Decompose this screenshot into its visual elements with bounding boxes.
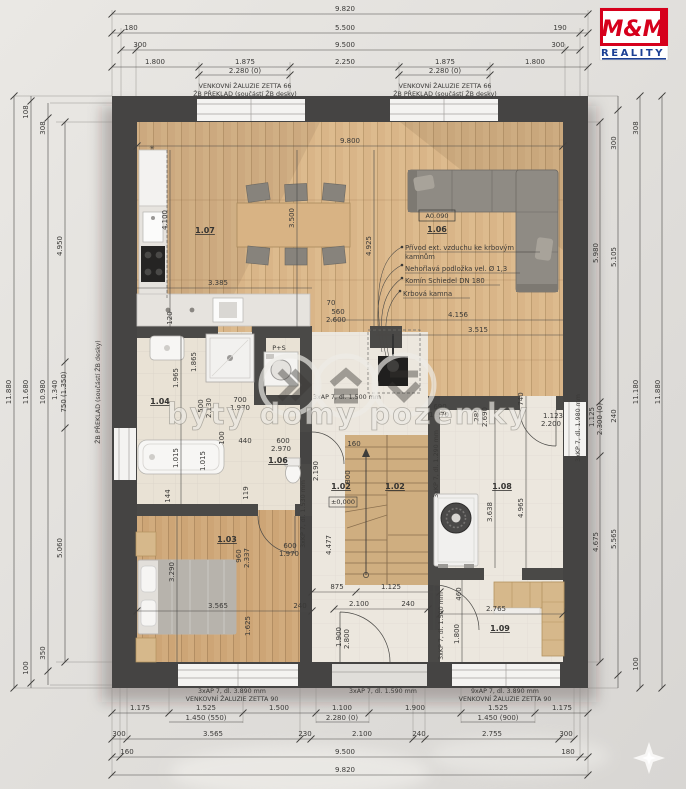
dim-label: 2.190 xyxy=(312,461,320,481)
dim-label: 9.500 xyxy=(335,41,355,49)
cooktop xyxy=(141,246,165,282)
dim-label: 308 xyxy=(39,121,47,134)
lintel-note: 9xAP 7, dl. 3.890 mm xyxy=(471,688,539,695)
room-label-living: 1.06 xyxy=(427,225,447,234)
lintel-note: 3xKP 7, dl. 1.290 mm xyxy=(433,430,440,498)
dim-label: 2.765 xyxy=(486,605,506,613)
lintel-note: ŽB PŘEKLAD (součástí ŽB desky) xyxy=(193,89,297,98)
snowflake-symbol: ✳ xyxy=(149,144,155,152)
dim-label: 240 xyxy=(610,409,618,422)
dim-label: 300 xyxy=(133,41,146,49)
room-label-entry: 1.09 xyxy=(490,624,510,633)
window-left xyxy=(114,428,136,480)
reference-label: A0.090 xyxy=(425,212,448,220)
dim-label: 108 xyxy=(22,105,30,118)
dim-label: 1.625 xyxy=(244,616,252,636)
dim-label: 2.100 xyxy=(349,600,369,608)
dim-label: 1.175 xyxy=(552,704,572,712)
dim-label: 180 xyxy=(561,748,574,756)
lintel-note: 3xKP 7, dl. 1.980 mm xyxy=(575,394,582,462)
dim-label: 2.100 xyxy=(352,730,372,738)
dim-label: 160 xyxy=(347,440,360,448)
dim-label: 240 xyxy=(412,730,425,738)
dim-label: 600 xyxy=(283,542,296,550)
mm-reality-logo: M&M REALITY xyxy=(600,8,668,60)
chair xyxy=(285,183,308,201)
shutter-note: VENKOVNÍ ŽALUZIE ZETTA 66 xyxy=(199,81,292,90)
dim-label: 875 xyxy=(330,583,343,591)
dim-label: 300 xyxy=(112,730,125,738)
dim-label: 5.565 xyxy=(610,529,618,549)
dim-label: 2.755 xyxy=(482,730,502,738)
dim-label: 230 xyxy=(298,730,311,738)
dim-label: 120 xyxy=(166,311,174,324)
lintel-note: 3xKP 7, dl. 1.530 mm xyxy=(300,480,307,548)
dim-label: 70 xyxy=(327,299,336,307)
dim-label: 1.875 xyxy=(435,58,455,66)
dim-label: 3.385 xyxy=(208,279,228,287)
dim-label: 440 xyxy=(238,437,251,445)
dim-label: 1.175 xyxy=(130,704,150,712)
lintel-note: ŽB PŘEKLAD (součástí ŽB desky) xyxy=(393,89,497,98)
room-label-tech: 1.08 xyxy=(492,482,512,491)
dim-label: 3.638 xyxy=(486,502,494,522)
dim-label: 144 xyxy=(164,489,172,503)
shutter-note: VENKOVNÍ ŽALUZIE ZETTA 66 xyxy=(399,81,492,90)
dim-label: 11.880 xyxy=(654,380,662,405)
logo-mm-text: M&M xyxy=(602,17,665,42)
dim-label: 9.820 xyxy=(335,766,355,774)
pillow xyxy=(535,237,554,261)
dim-label: 1.965 xyxy=(172,368,180,388)
dim-label: 11.880 xyxy=(5,380,13,405)
dim-label: 5.105 xyxy=(610,247,618,267)
dim-label: 460 xyxy=(455,587,463,600)
dim-label: 1.125 xyxy=(381,583,401,591)
dim-label: 3.290 xyxy=(168,562,176,582)
room-label-stairs: 1.02 xyxy=(385,482,405,491)
pillow xyxy=(141,566,156,592)
dim-label: 4.925 xyxy=(365,236,373,256)
dim-label: 1.100 xyxy=(332,704,352,712)
chair xyxy=(322,246,346,265)
chair xyxy=(246,183,270,203)
room-label-stairs: 1.02 xyxy=(331,482,351,491)
pillow xyxy=(141,600,156,626)
dim-label: 4.100 xyxy=(161,210,169,230)
nightstand xyxy=(136,638,156,662)
dim-label: 5.980 xyxy=(592,243,600,263)
logo-reality-text: REALITY xyxy=(601,48,665,59)
room-label-kitchen: 1.07 xyxy=(195,226,215,235)
lintel-note: 3xKP 7, dl. 1.500 mm xyxy=(438,592,445,660)
dim-label: 2.970 xyxy=(271,445,291,453)
chair xyxy=(322,183,346,202)
entry-door-opening xyxy=(332,664,427,686)
dim-label: 240 xyxy=(401,600,414,608)
dim-label: 2.600 xyxy=(326,316,346,324)
dim-label: 3.515 xyxy=(468,326,488,334)
dim-label: 308 xyxy=(632,121,640,134)
chair xyxy=(246,246,270,265)
dim-label: 5.060 xyxy=(56,538,64,558)
dim-label: 190 xyxy=(553,24,566,32)
dim-label: 1.015 xyxy=(172,448,180,468)
dim-label: 300 xyxy=(610,136,618,149)
shutter-note: VENKOVNÍ ŽALUZIE ZETTA 90 xyxy=(459,694,552,703)
dim-label: 2.200 xyxy=(541,420,561,428)
dim-label: 960 xyxy=(235,549,243,562)
chair xyxy=(285,248,307,265)
elevation-label: ±0,000 xyxy=(331,498,355,506)
dim-label: 4.965 xyxy=(517,498,525,518)
dim-label: 300 xyxy=(559,730,572,738)
dim-label: 1.800 xyxy=(453,624,461,644)
lintel-note: 3xAP 7, dl. 3.890 mm xyxy=(198,688,266,695)
annotation-chimney: Komín Schiedel DN 180 xyxy=(405,277,485,285)
dim-label: 2.280 (0) xyxy=(326,714,358,722)
dim-label: 100 xyxy=(632,657,640,670)
dim-label: 2.800 xyxy=(343,629,351,649)
dim-label: 1.900 xyxy=(405,704,425,712)
room-label-bedroom: 1.03 xyxy=(217,535,237,544)
dim-label: 2.250 xyxy=(335,58,355,66)
dim-label: 3.500 xyxy=(288,208,296,228)
annotation-air-supply: Přívod ext. vzduchu ke krbovým xyxy=(405,244,514,252)
dim-label: 560 xyxy=(331,308,344,316)
dim-label: 1.875 xyxy=(235,58,255,66)
dim-label: 300 xyxy=(551,41,564,49)
dim-label: 9.500 xyxy=(335,748,355,756)
annotation-air-supply-2: kamnům xyxy=(405,253,435,261)
washer-dryer-label: P+S xyxy=(272,344,286,352)
dim-label: 600 xyxy=(276,437,289,445)
dim-label: 1.450 (900) xyxy=(477,714,518,722)
watermark-text: byty domy pozemky xyxy=(167,397,529,431)
dim-label: 1.525 xyxy=(488,704,508,712)
floorplan-page: 9.820 180 5.500 190 300 9.500 300 1.800 … xyxy=(0,0,686,789)
dim-label: 2.337 xyxy=(243,548,251,568)
dim-label: 1.340 xyxy=(51,380,59,400)
dim-label: 750 (1.350) xyxy=(60,371,68,412)
dim-label: 119 xyxy=(242,486,250,499)
annotation-pad: Nehořlavá podložka vel. Ø 1,3 xyxy=(405,265,507,273)
dim-label: 4.156 xyxy=(448,311,469,319)
heat-pump xyxy=(434,494,478,568)
dim-label: 1.970 xyxy=(279,550,299,558)
dim-label: 11.180 xyxy=(632,380,640,405)
dim-label: 1.450 (550) xyxy=(185,714,226,722)
dim-label: 10.980 xyxy=(39,380,47,405)
dim-label: 180 xyxy=(124,24,137,32)
dim-label: 100 xyxy=(218,431,226,444)
dim-label: 3.565 xyxy=(203,730,223,738)
dim-label: 1.865 xyxy=(190,352,198,372)
dim-label: 3.565 xyxy=(208,602,228,610)
nightstand xyxy=(136,532,156,556)
dim-label: 1.125 xyxy=(588,407,596,427)
dim-label: 1.900 xyxy=(335,627,343,647)
dim-label: 240 xyxy=(293,602,306,610)
dim-label: 1.525 xyxy=(196,704,216,712)
lintel-note: 3xAP 7, dl. 1.590 mm xyxy=(349,688,417,695)
dim-label: 350 xyxy=(39,646,47,659)
fridge xyxy=(139,150,167,206)
dim-label: 2.280 (0) xyxy=(229,67,261,75)
dim-label: 160 xyxy=(120,748,133,756)
lintel-note: ŽB PŘEKLAD (součástí ŽB desky) xyxy=(93,340,102,444)
dim-label: 1.500 xyxy=(269,704,289,712)
cloud-shape xyxy=(430,736,610,776)
floorplan-drawing: 9.820 180 5.500 190 300 9.500 300 1.800 … xyxy=(0,0,686,789)
dim-label: 11.680 xyxy=(22,380,30,405)
dim-label: 1.800 xyxy=(525,58,545,66)
annotation-stove: Krbová kamna xyxy=(403,290,452,298)
dim-label: 2.300 (0) xyxy=(596,403,604,435)
dim-label: 4.675 xyxy=(592,532,600,552)
dim-label: 5.500 xyxy=(335,24,355,32)
dim-label: 1.800 xyxy=(145,58,165,66)
dim-label: 1.015 xyxy=(199,451,207,471)
dim-label: 100 xyxy=(22,661,30,674)
dim-label: 9.800 xyxy=(340,137,360,145)
dim-label: 2.280 (0) xyxy=(429,67,461,75)
shutter-note: VENKOVNÍ ŽALUZIE ZETTA 90 xyxy=(186,694,279,703)
dim-label: 4.477 xyxy=(325,535,333,555)
room-label-wc: 1.06 xyxy=(268,456,288,465)
dim-label: 4.950 xyxy=(56,236,64,256)
dim-label: 1.123 xyxy=(543,412,563,420)
dim-label: 9.820 xyxy=(335,5,355,13)
